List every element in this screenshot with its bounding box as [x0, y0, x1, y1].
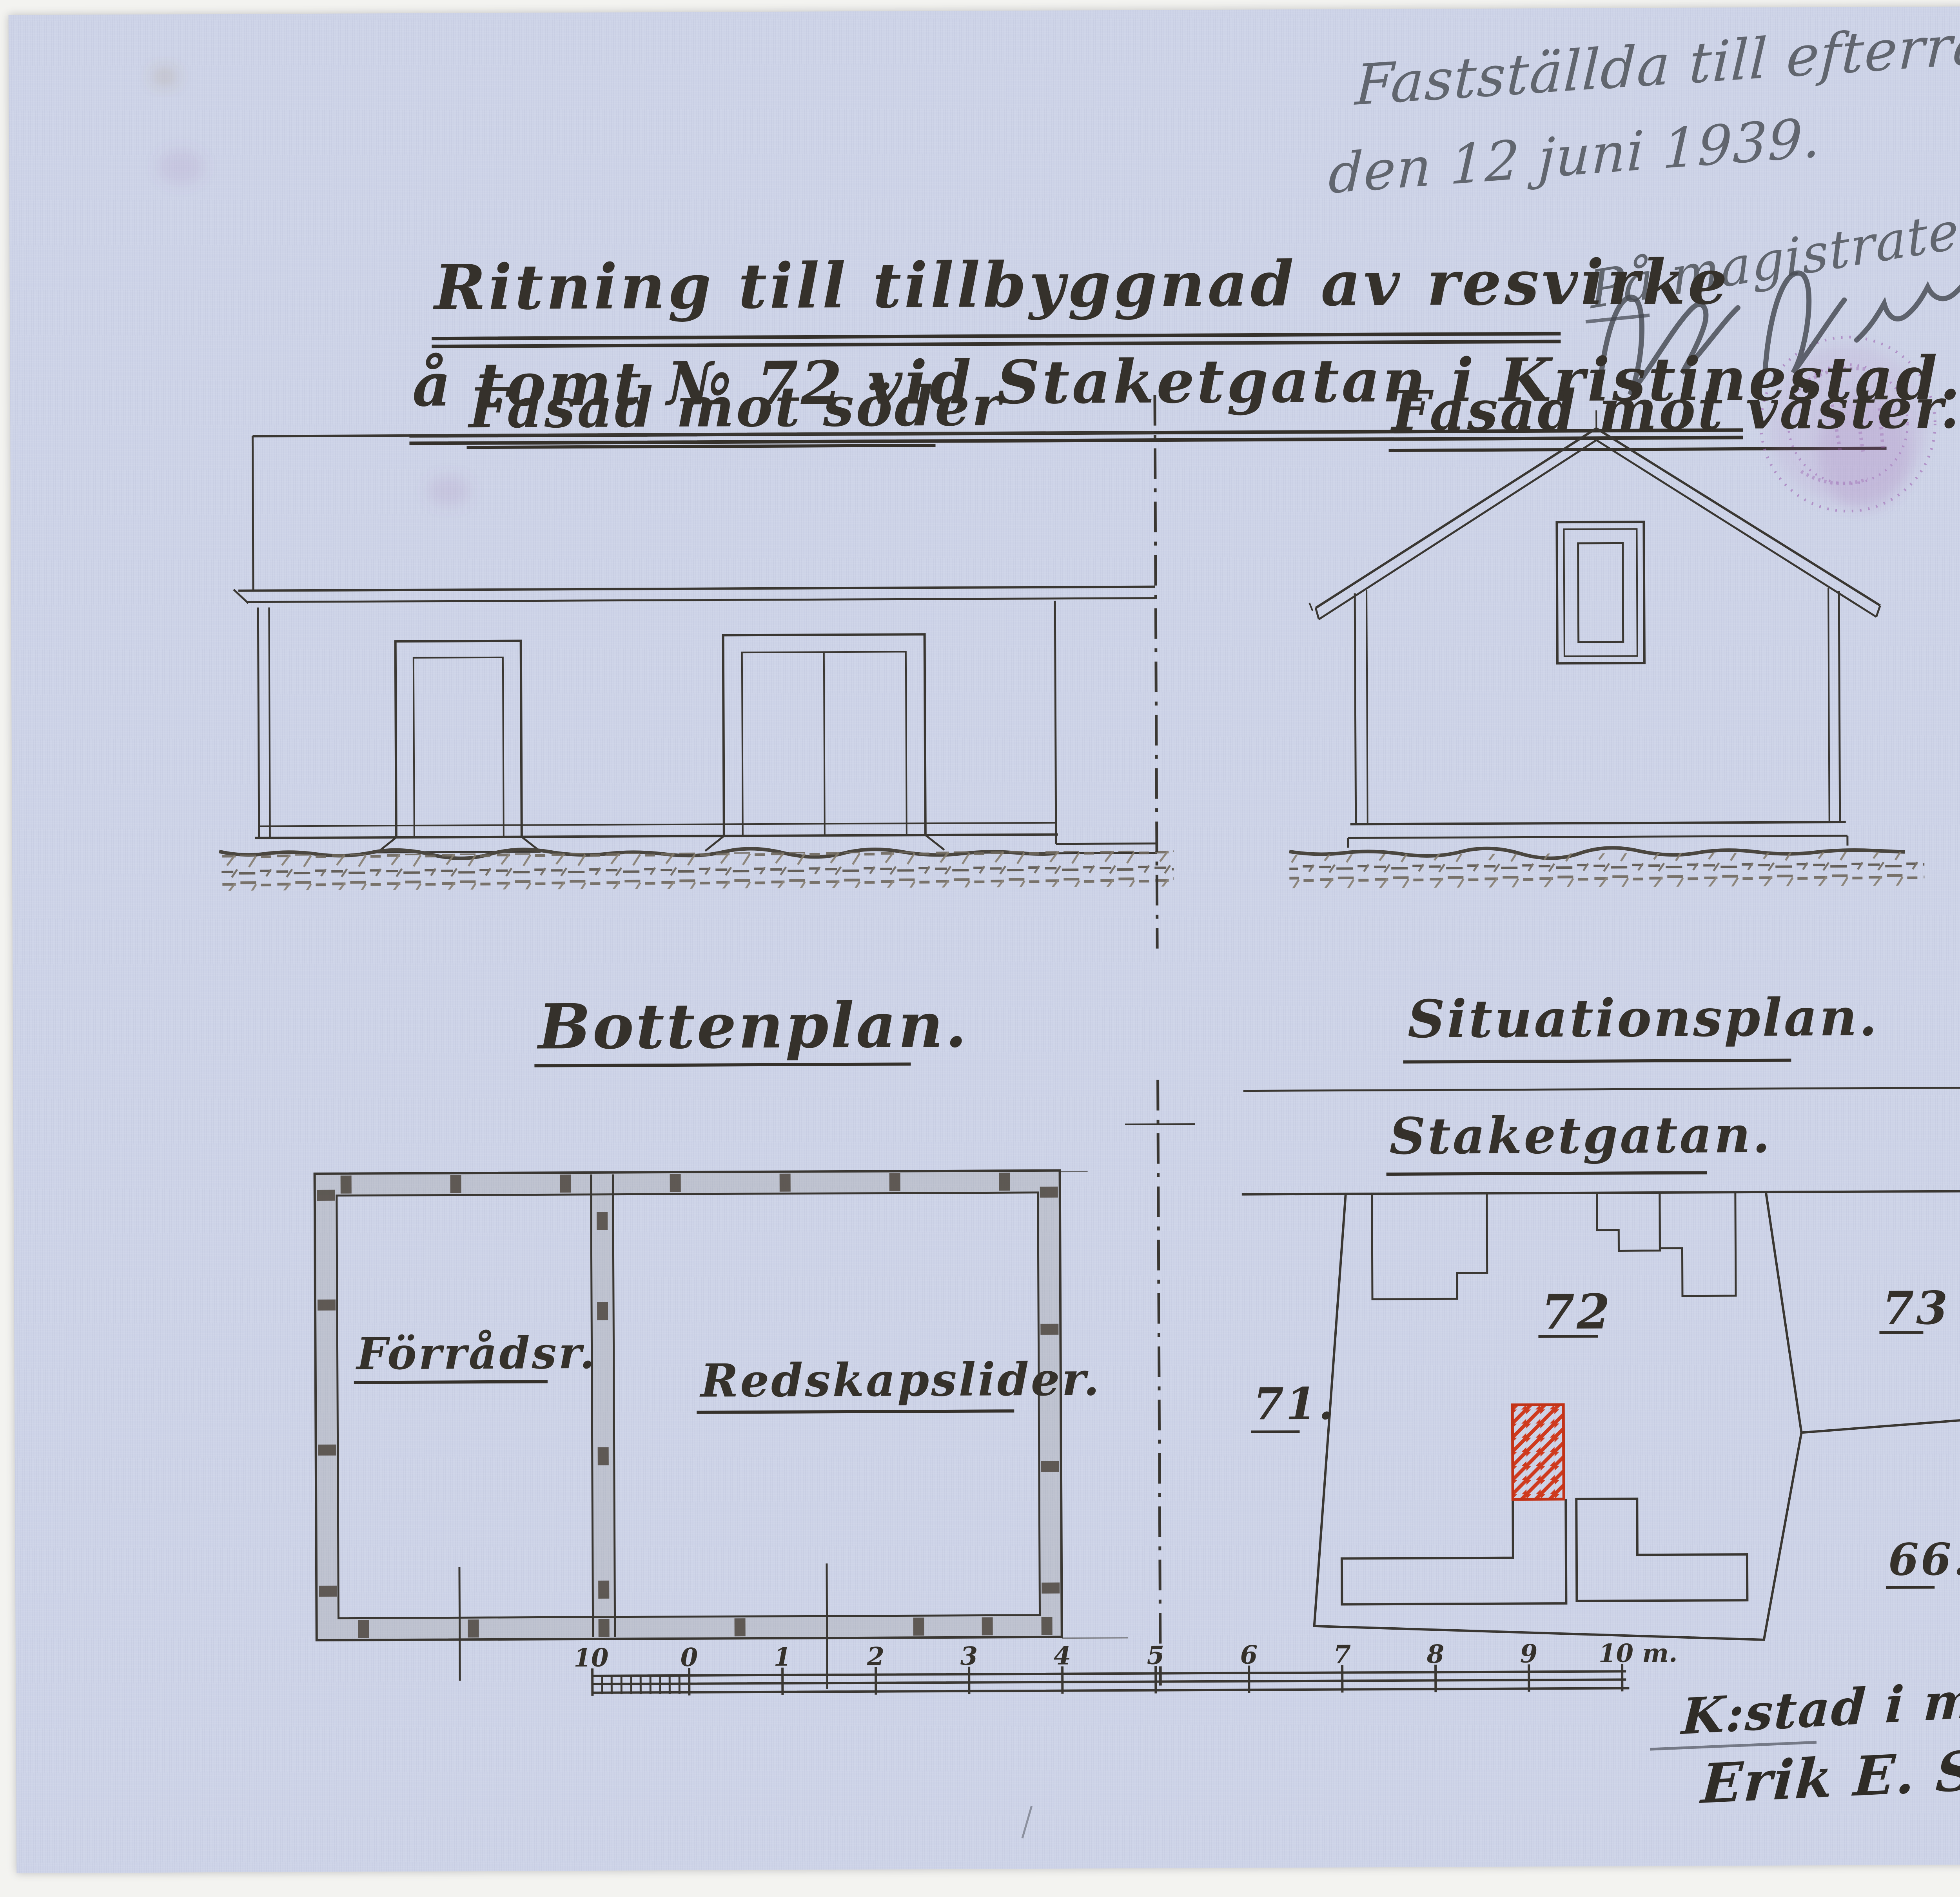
scale-tick-label: 1: [765, 1645, 800, 1670]
plot-number-bottom: 66.: [1888, 1538, 1960, 1582]
scale-tick-label: 5: [1138, 1643, 1173, 1668]
scale-tick-label: 10: [573, 1646, 609, 1671]
ground-south: [219, 847, 1174, 891]
heading-south-elevation: Fasad mot söder: [469, 379, 1003, 436]
room-label-storage: Förrådsr.: [356, 1331, 597, 1376]
section-line-plan: [1158, 1080, 1161, 1686]
ground-west: [1289, 846, 1924, 888]
title-underlines: [349, 332, 1935, 1594]
scale-tick-label: 9: [1511, 1641, 1546, 1666]
paper-stains: [151, 65, 470, 507]
street-line: [1242, 1191, 1960, 1194]
scale-tick-label: 6: [1231, 1643, 1267, 1668]
plot-number-main: 72: [1541, 1288, 1612, 1336]
new-addition-red: [1512, 1405, 1564, 1499]
double-door: [704, 634, 944, 851]
scale-bar: [592, 1664, 1629, 1696]
scale-tick-label: 8: [1418, 1642, 1453, 1667]
single-door: [377, 641, 541, 852]
heading-floor-plan: Bottenplan.: [538, 995, 969, 1058]
door-axis-left: [459, 1567, 460, 1681]
south-elevation-drawing: [217, 395, 1174, 953]
scale-end-label: 10 m.: [1599, 1641, 1693, 1666]
site-plan-drawing: [1241, 1087, 1960, 1642]
plot-number-right: 73: [1882, 1285, 1950, 1331]
scale-tick-label: 4: [1045, 1643, 1080, 1668]
heading-site-plan: Situationsplan.: [1408, 992, 1879, 1046]
scale-tick-label: 0: [671, 1645, 707, 1670]
street-label: Staketgatan.: [1389, 1110, 1772, 1162]
sheet-content: Fastställda till efterrättelse den 12 ju…: [9, 5, 1960, 1873]
scale-tick-label: 2: [858, 1645, 893, 1670]
door-axis-right: [827, 1563, 827, 1689]
scanned-drawing-sheet: { "sheet": { "page_number": "27.", "appr…: [0, 0, 1960, 1897]
blueprint-paper: Fastställda till efterrättelse den 12 ju…: [9, 5, 1960, 1873]
heading-west-elevation: Fasad mot väster.: [1392, 381, 1960, 439]
room-label-tool-shed: Redskapslider.: [701, 1356, 1102, 1403]
scale-tick-label: 7: [1325, 1642, 1360, 1667]
scale-tick-label: 3: [951, 1644, 987, 1669]
sheet-title-line1: Ritning till tillbyggnad av resvirke: [434, 251, 1730, 319]
gable-window: [1557, 522, 1644, 663]
plot-number-left: 71.: [1253, 1382, 1336, 1427]
